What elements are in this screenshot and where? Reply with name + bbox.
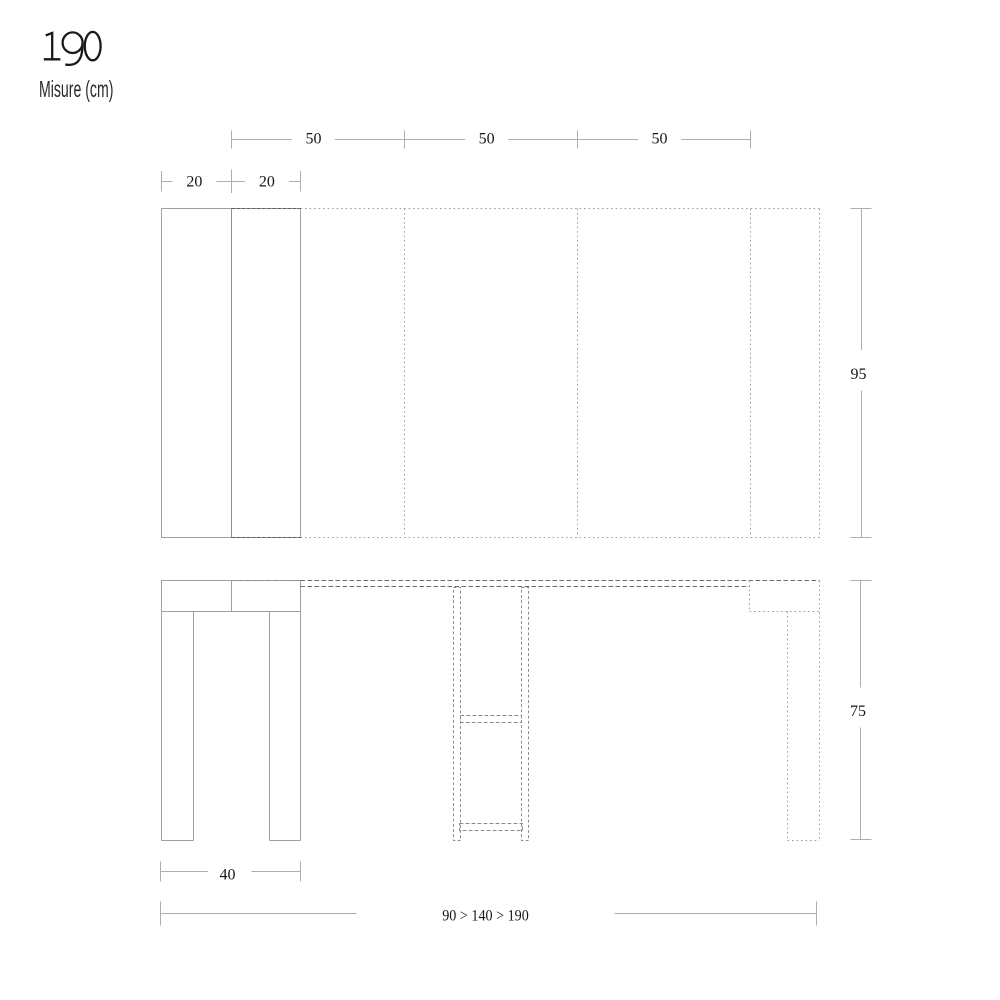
svg-text:20: 20	[186, 174, 202, 191]
svg-text:50: 50	[306, 131, 322, 148]
svg-text:50: 50	[479, 131, 495, 148]
svg-text:90 > 140 > 190: 90 > 140 > 190	[442, 908, 529, 925]
svg-text:50: 50	[652, 131, 668, 148]
svg-text:20: 20	[259, 174, 275, 191]
svg-text:95: 95	[851, 366, 867, 383]
svg-text:75: 75	[850, 703, 866, 720]
svg-text:Misure (cm): Misure (cm)	[39, 76, 113, 102]
svg-text:40: 40	[220, 866, 236, 883]
